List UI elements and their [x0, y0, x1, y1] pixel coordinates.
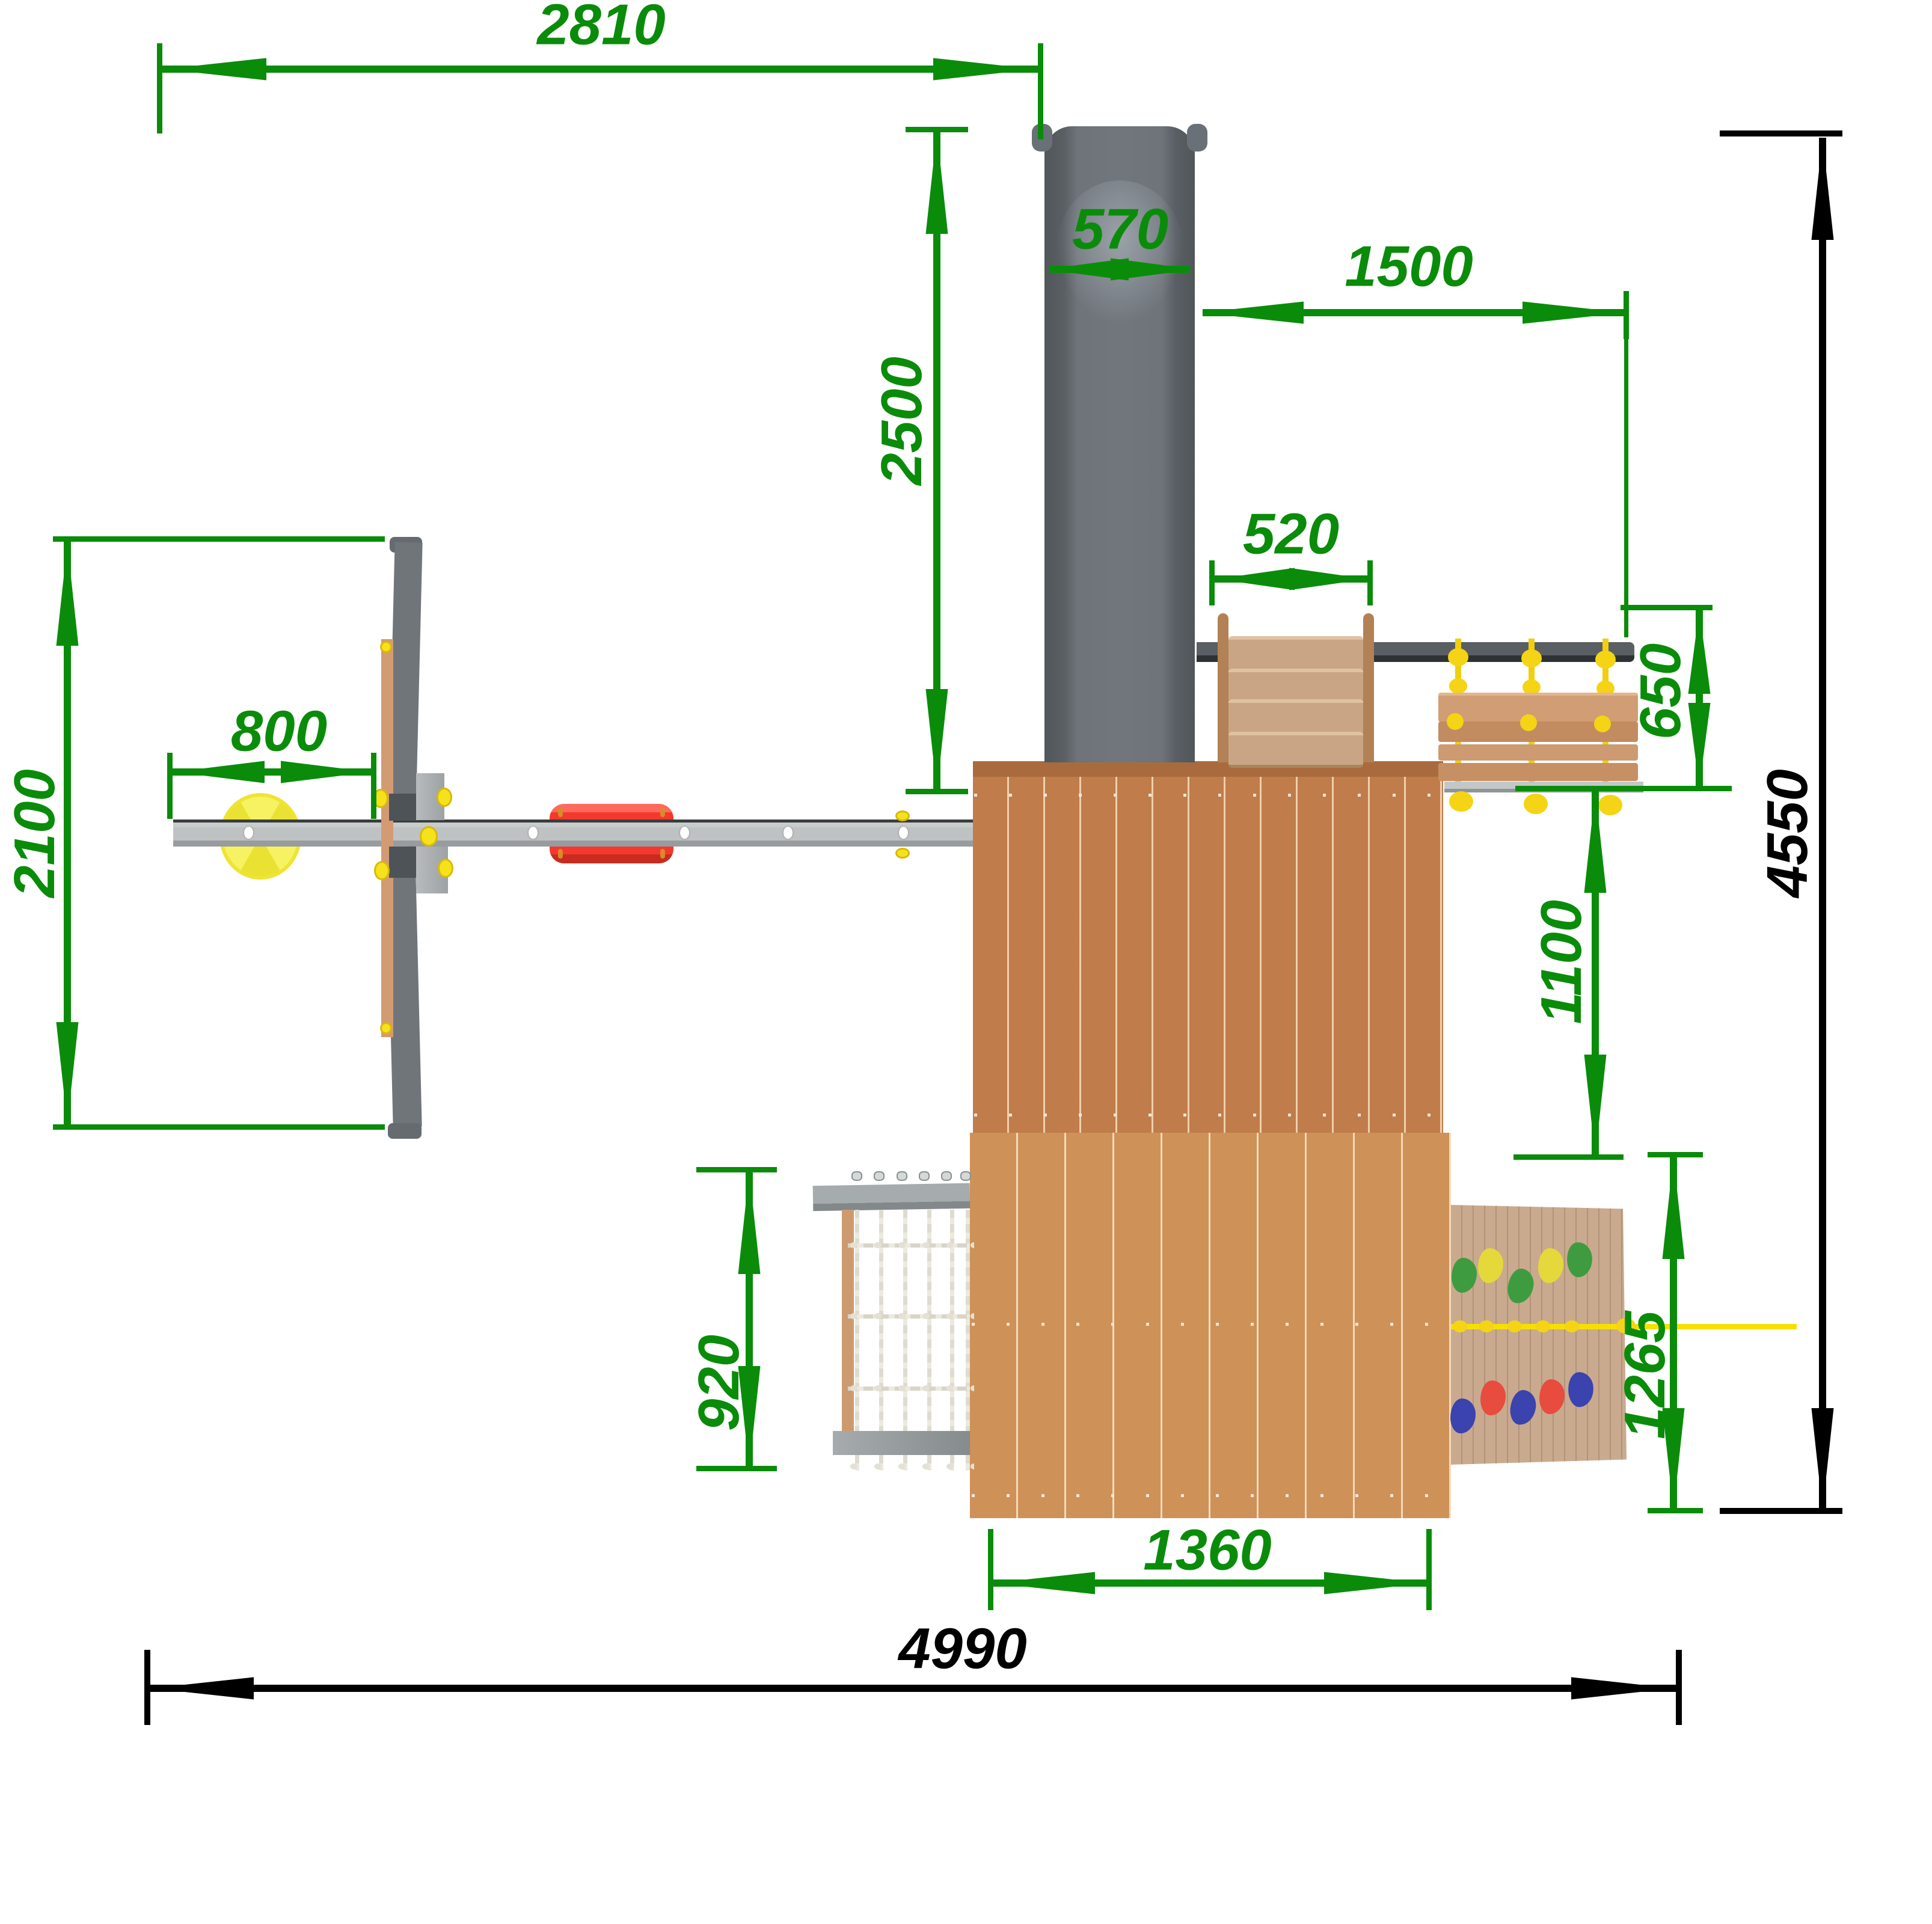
- seat-bolt: [660, 807, 665, 817]
- swing-beam-face: [173, 823, 973, 847]
- bolt: [380, 1022, 392, 1034]
- bolt: [895, 848, 910, 859]
- net-bolt: [919, 1171, 930, 1181]
- net-bolt: [960, 1171, 971, 1181]
- dim-label-1100: 1100: [1529, 900, 1595, 1024]
- bench-slat: [1438, 763, 1638, 781]
- dim-label-520: 520: [1243, 501, 1339, 568]
- ladder-rail-right: [1363, 613, 1374, 762]
- beam-hole: [680, 827, 689, 839]
- dim-label-1360: 1360: [1143, 1518, 1272, 1584]
- rope-knot: [1479, 1320, 1494, 1332]
- bolt: [895, 810, 910, 821]
- drawing-canvas: 2810 570 1500 2500 800: [0, 0, 1932, 1924]
- beam-hole: [529, 827, 538, 839]
- rope-hook-knot: [1449, 791, 1473, 812]
- rope-knot: [1453, 1320, 1467, 1332]
- dim-label-2810: 2810: [537, 0, 666, 58]
- dim-label-4550: 4550: [1755, 769, 1821, 898]
- beam-bracket: [389, 847, 418, 878]
- rope-knot: [1521, 649, 1542, 667]
- ladder-rung: [1228, 669, 1363, 703]
- nail-row: [972, 1494, 1449, 1497]
- rope-knot: [1595, 651, 1616, 669]
- dim-label-570: 570: [1072, 197, 1168, 263]
- rope-hook-knot: [1598, 795, 1622, 815]
- rope-knot: [1565, 1320, 1579, 1332]
- net-knots: [848, 1310, 974, 1323]
- bench-slat: [1438, 744, 1638, 761]
- net-top-rail: [813, 1183, 971, 1212]
- beam-hole: [899, 827, 908, 839]
- seat-bolt: [660, 849, 665, 859]
- dim-label-2100: 2100: [2, 769, 68, 898]
- nail-row: [974, 1114, 1442, 1117]
- dim-label-1265: 1265: [1612, 1311, 1678, 1439]
- net-bolt: [897, 1171, 907, 1181]
- beam-hole: [784, 827, 793, 839]
- rope-knot: [1536, 1320, 1550, 1332]
- net-bolt: [851, 1171, 862, 1181]
- bolt: [437, 788, 452, 807]
- rope-knot: [1448, 648, 1468, 666]
- slide-edge-cap: [1187, 124, 1207, 152]
- climbing-wall: [1451, 1205, 1627, 1465]
- net-rope-ends: [848, 1460, 974, 1473]
- rope-knot: [1594, 715, 1611, 732]
- a-frame-shoe-bottom: [388, 1123, 422, 1139]
- dim-label-650: 650: [1628, 643, 1694, 740]
- rope-knot: [1507, 1320, 1522, 1332]
- beam-hole: [244, 827, 253, 839]
- bolt: [438, 859, 453, 878]
- rope-knot: [1520, 714, 1537, 731]
- upper-platform: [973, 761, 1443, 1133]
- rope-knot: [1447, 713, 1464, 730]
- dim-label-2500: 2500: [869, 357, 935, 485]
- dim-label-920: 920: [686, 1335, 752, 1431]
- net-bolt: [941, 1171, 952, 1181]
- dim-label-1500: 1500: [1345, 234, 1473, 300]
- ladder-rail-left: [1218, 613, 1228, 762]
- ladder-rung: [1228, 699, 1363, 737]
- rope-hook-knot: [1524, 794, 1548, 814]
- bolt: [380, 641, 392, 653]
- dim-label-4990: 4990: [898, 1616, 1027, 1682]
- bolt: [374, 861, 390, 880]
- bolt: [420, 826, 438, 847]
- beam-bracket: [389, 794, 418, 821]
- net-knots: [848, 1239, 974, 1252]
- net-bottom-rail: [833, 1431, 970, 1455]
- net-bolt: [874, 1171, 885, 1181]
- ladder-rung: [1228, 732, 1363, 768]
- dim-label-800: 800: [231, 699, 327, 765]
- rope-knot: [1449, 678, 1467, 694]
- seat-bolt: [558, 807, 563, 817]
- net-knots: [848, 1382, 974, 1395]
- nail-row: [974, 794, 1442, 797]
- ladder-rung: [1228, 636, 1363, 673]
- seat-bolt: [558, 849, 563, 859]
- nail-row: [972, 1323, 1449, 1326]
- a-frame-wood-post: [381, 639, 393, 1037]
